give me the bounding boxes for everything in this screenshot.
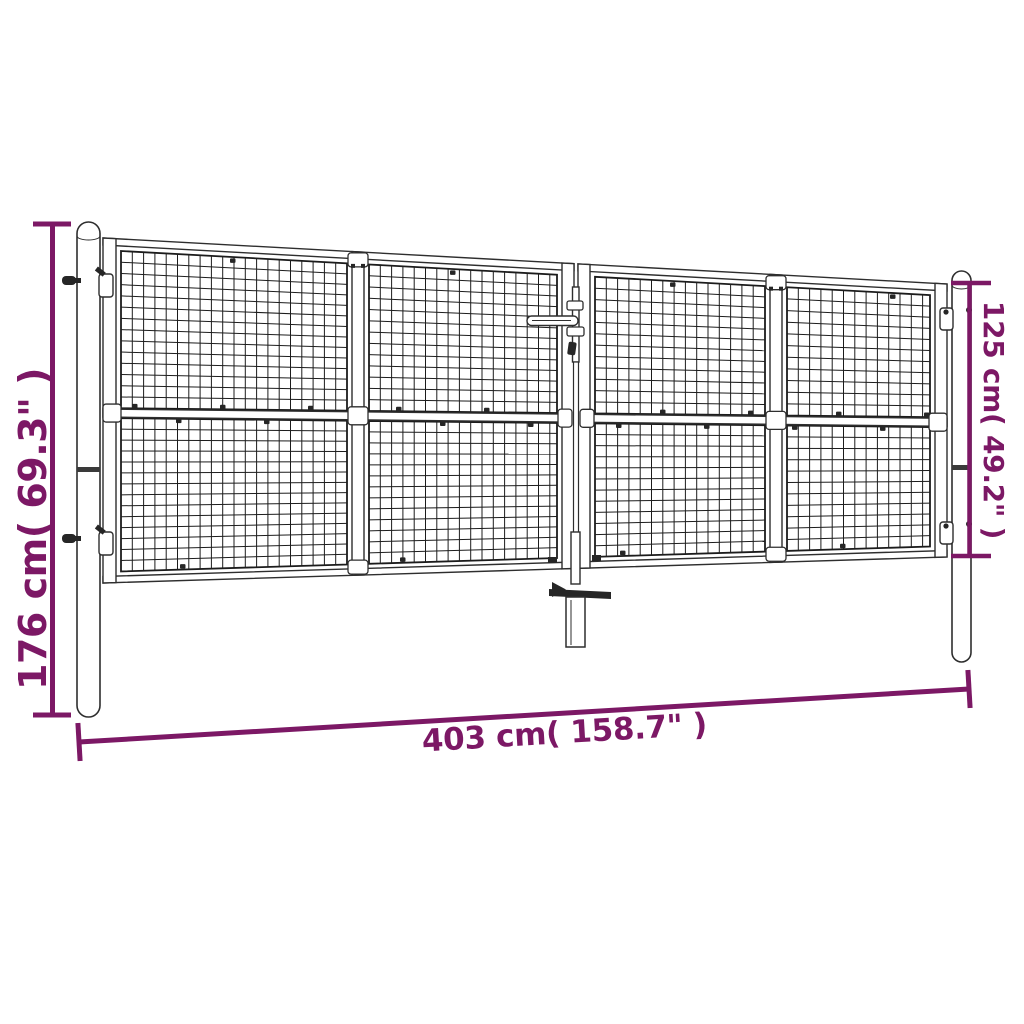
mesh-panel xyxy=(369,264,557,412)
gate-height-label: 125 cm( 49.2" ) xyxy=(977,301,1010,539)
mesh-panel xyxy=(787,426,930,551)
mesh-panel xyxy=(121,418,347,571)
mesh-panel xyxy=(595,277,765,415)
gate-bottom-rail xyxy=(578,551,947,569)
product-dimension-diagram: 176 cm( 69.3" ) 125 cm( 49.2" ) 403 cm( … xyxy=(0,0,1024,1024)
gate-hardware xyxy=(62,253,972,647)
dimension-cap xyxy=(968,670,970,708)
mesh-panel xyxy=(787,287,930,417)
dimension-cap xyxy=(78,723,80,761)
gate-diagram: 176 cm( 69.3" ) 125 cm( 49.2" ) 403 cm( … xyxy=(0,0,1024,1024)
mesh-panel xyxy=(595,423,765,556)
mesh-panel xyxy=(121,251,347,411)
gate-middle-rail xyxy=(103,409,574,422)
mesh-panel xyxy=(369,421,557,564)
drop-rod xyxy=(574,362,579,534)
left-post xyxy=(77,222,100,717)
dimension-post-height: 176 cm( 69.3" ) xyxy=(11,224,71,715)
total-width-label: 403 cm( 158.7" ) xyxy=(421,707,708,760)
drop-rod-tube xyxy=(566,597,585,647)
gate-top-rail xyxy=(578,264,947,291)
post-height-label: 176 cm( 69.3" ) xyxy=(11,368,55,690)
dimension-total-width: 403 cm( 158.7" ) xyxy=(78,670,970,761)
